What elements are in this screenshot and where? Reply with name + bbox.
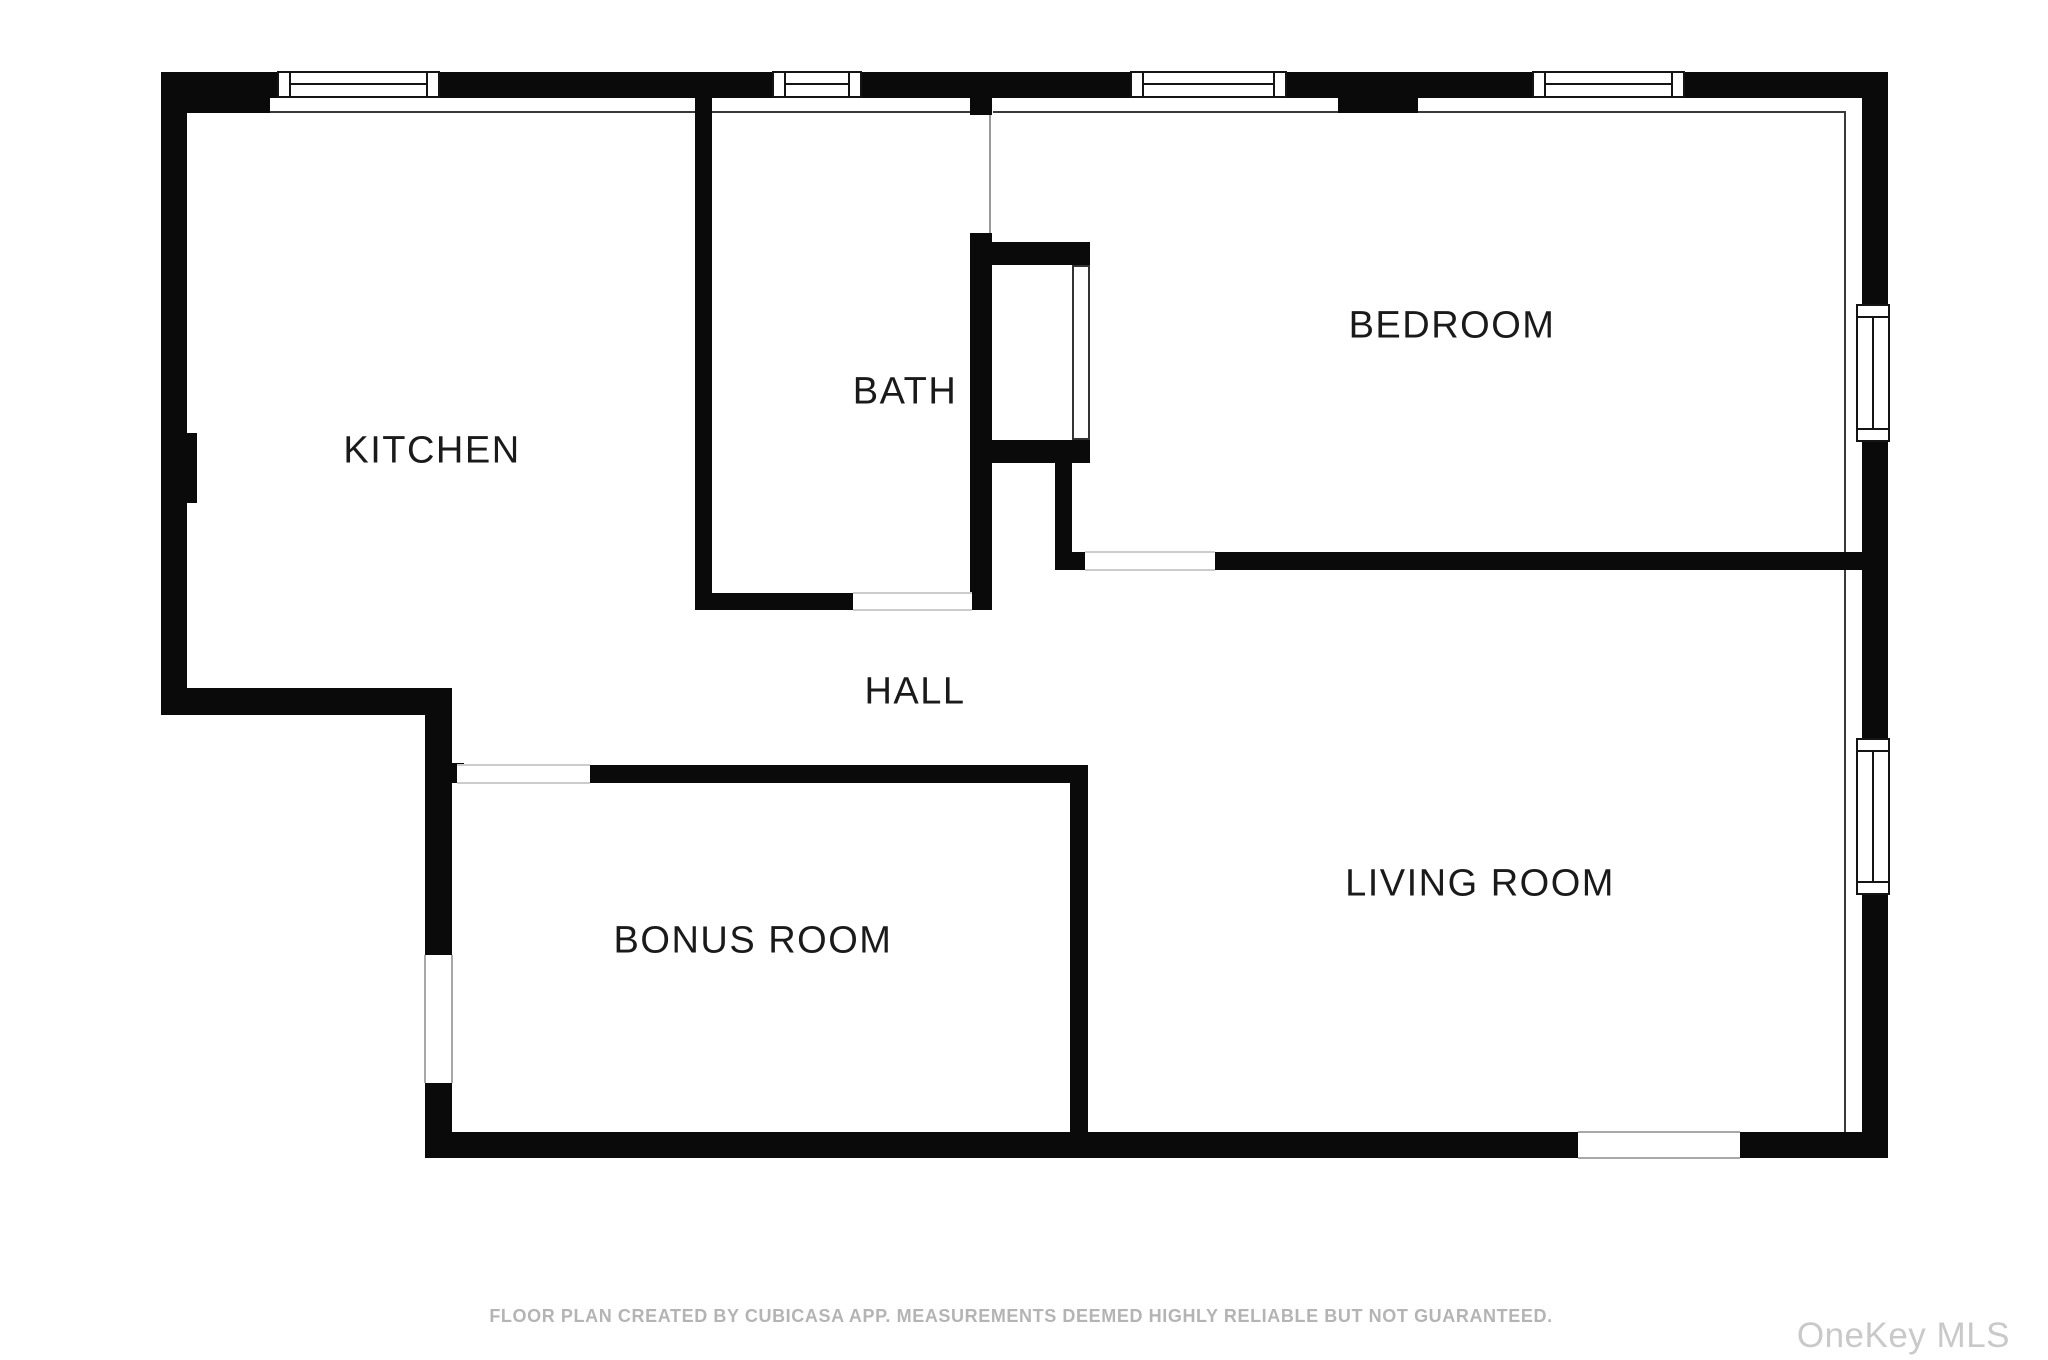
wall-bedroom-living-divider [1215, 552, 1862, 570]
door-bath-bedroom-jamb [989, 115, 991, 233]
sill-line-top-bedroom-a [993, 111, 1338, 113]
window-bonus-west [424, 955, 453, 1083]
closet-door [1072, 265, 1090, 440]
wall-left-pier [187, 433, 197, 503]
wall-closet-south [970, 440, 1090, 463]
window-living-south [1578, 1131, 1740, 1159]
window-frame [291, 83, 426, 85]
window-frame [1273, 73, 1275, 96]
window-frame [786, 83, 848, 85]
sill-line-top-bedroom-b [1418, 111, 1844, 113]
wall-bath-east-stub [970, 98, 992, 115]
window-frame [1858, 881, 1888, 883]
room-label-living-room: LIVING ROOM [1345, 863, 1615, 906]
floor-plan: KITCHEN BATH BEDROOM HALL BONUS ROOM LIV… [0, 0, 2048, 1360]
window-bedroom-north-2 [1532, 71, 1685, 98]
window-frame [426, 73, 428, 96]
window-kitchen-north [277, 71, 440, 98]
window-bath-north [772, 71, 862, 98]
door-bedroom [1085, 551, 1215, 571]
window-bedroom-east [1856, 304, 1890, 442]
sill-line-top-kitchen [270, 111, 695, 113]
wall-closet-north [970, 242, 1090, 265]
wall-bonus-east [1070, 765, 1088, 1132]
window-frame [1546, 83, 1671, 85]
door-bonus-room [457, 764, 590, 784]
wall-exterior-right [1862, 72, 1888, 1158]
door-bath [853, 592, 972, 611]
window-frame [1872, 752, 1874, 881]
wall-bath-south [695, 593, 853, 610]
sill-line-right-wall [1844, 111, 1846, 1132]
wall-bath-west [695, 98, 712, 610]
room-label-bedroom: BEDROOM [1349, 305, 1556, 348]
room-label-bath: BATH [853, 371, 958, 414]
window-frame [848, 73, 850, 96]
room-label-hall: HALL [864, 671, 965, 714]
wall-exterior-left [161, 72, 187, 715]
window-bedroom-north-1 [1130, 71, 1287, 98]
window-frame [1858, 428, 1888, 430]
wall-bath-east [970, 233, 992, 610]
wall-bedroom-pier [1338, 98, 1418, 113]
room-label-bonus-room: BONUS ROOM [614, 920, 893, 963]
window-frame [1144, 83, 1273, 85]
wall-bedroom-alcove [1055, 463, 1072, 552]
wall-top-left-corner-block [161, 98, 270, 113]
window-frame [1671, 73, 1673, 96]
wall-alcove-foot [1055, 552, 1085, 570]
room-label-kitchen: KITCHEN [343, 430, 520, 473]
watermark-onekey-mls: OneKey MLS [1797, 1316, 2010, 1356]
window-living-east [1856, 738, 1890, 895]
wall-bonus-west-upper [425, 688, 452, 955]
wall-kitchen-south [161, 688, 452, 715]
wall-bonus-north [590, 765, 1088, 783]
footer-disclaimer: FLOOR PLAN CREATED BY CUBICASA APP. MEAS… [489, 1306, 1552, 1327]
window-frame [1872, 318, 1874, 428]
sill-line-top-bath [712, 111, 970, 113]
